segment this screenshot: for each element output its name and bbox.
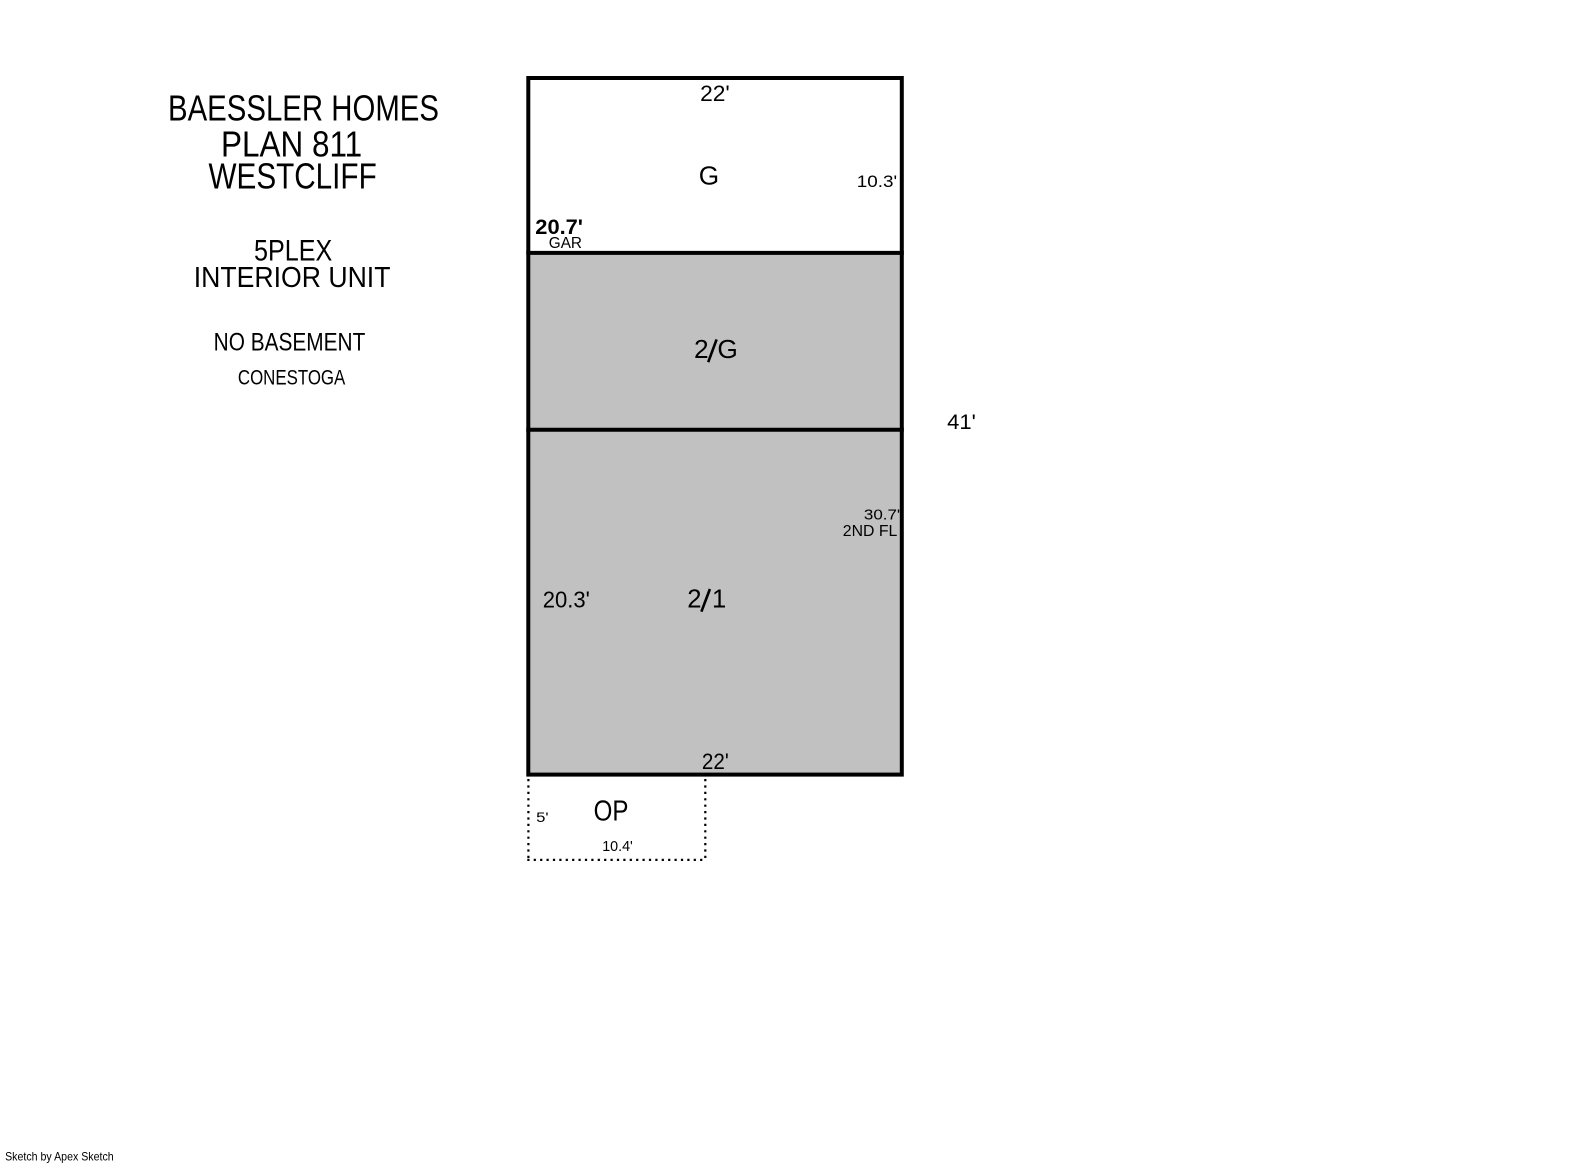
svg-text:GAR: GAR xyxy=(549,235,582,252)
svg-text:INTERIOR UNIT: INTERIOR UNIT xyxy=(194,262,391,294)
svg-text:OP: OP xyxy=(594,796,629,828)
svg-text:WESTCLIFF: WESTCLIFF xyxy=(209,155,377,196)
svg-text:G: G xyxy=(717,334,737,364)
svg-text:NO BASEMENT: NO BASEMENT xyxy=(214,328,366,356)
svg-text:41': 41' xyxy=(947,411,976,434)
svg-text:22': 22' xyxy=(702,749,729,774)
svg-text:22': 22' xyxy=(700,81,730,106)
svg-text:G: G xyxy=(699,160,719,190)
svg-text:2ND FL: 2ND FL xyxy=(843,522,898,540)
svg-text:5': 5' xyxy=(536,809,549,825)
svg-text:Sketch by Apex Sketch: Sketch by Apex Sketch xyxy=(5,1149,114,1163)
svg-text:CONESTOGA: CONESTOGA xyxy=(238,366,345,389)
svg-text:2: 2 xyxy=(687,585,701,613)
svg-text:20.3': 20.3' xyxy=(543,587,590,613)
svg-text:10.4': 10.4' xyxy=(602,839,633,855)
svg-text:1: 1 xyxy=(712,585,726,613)
svg-text:2: 2 xyxy=(694,334,709,364)
svg-text:10.3': 10.3' xyxy=(857,173,897,191)
